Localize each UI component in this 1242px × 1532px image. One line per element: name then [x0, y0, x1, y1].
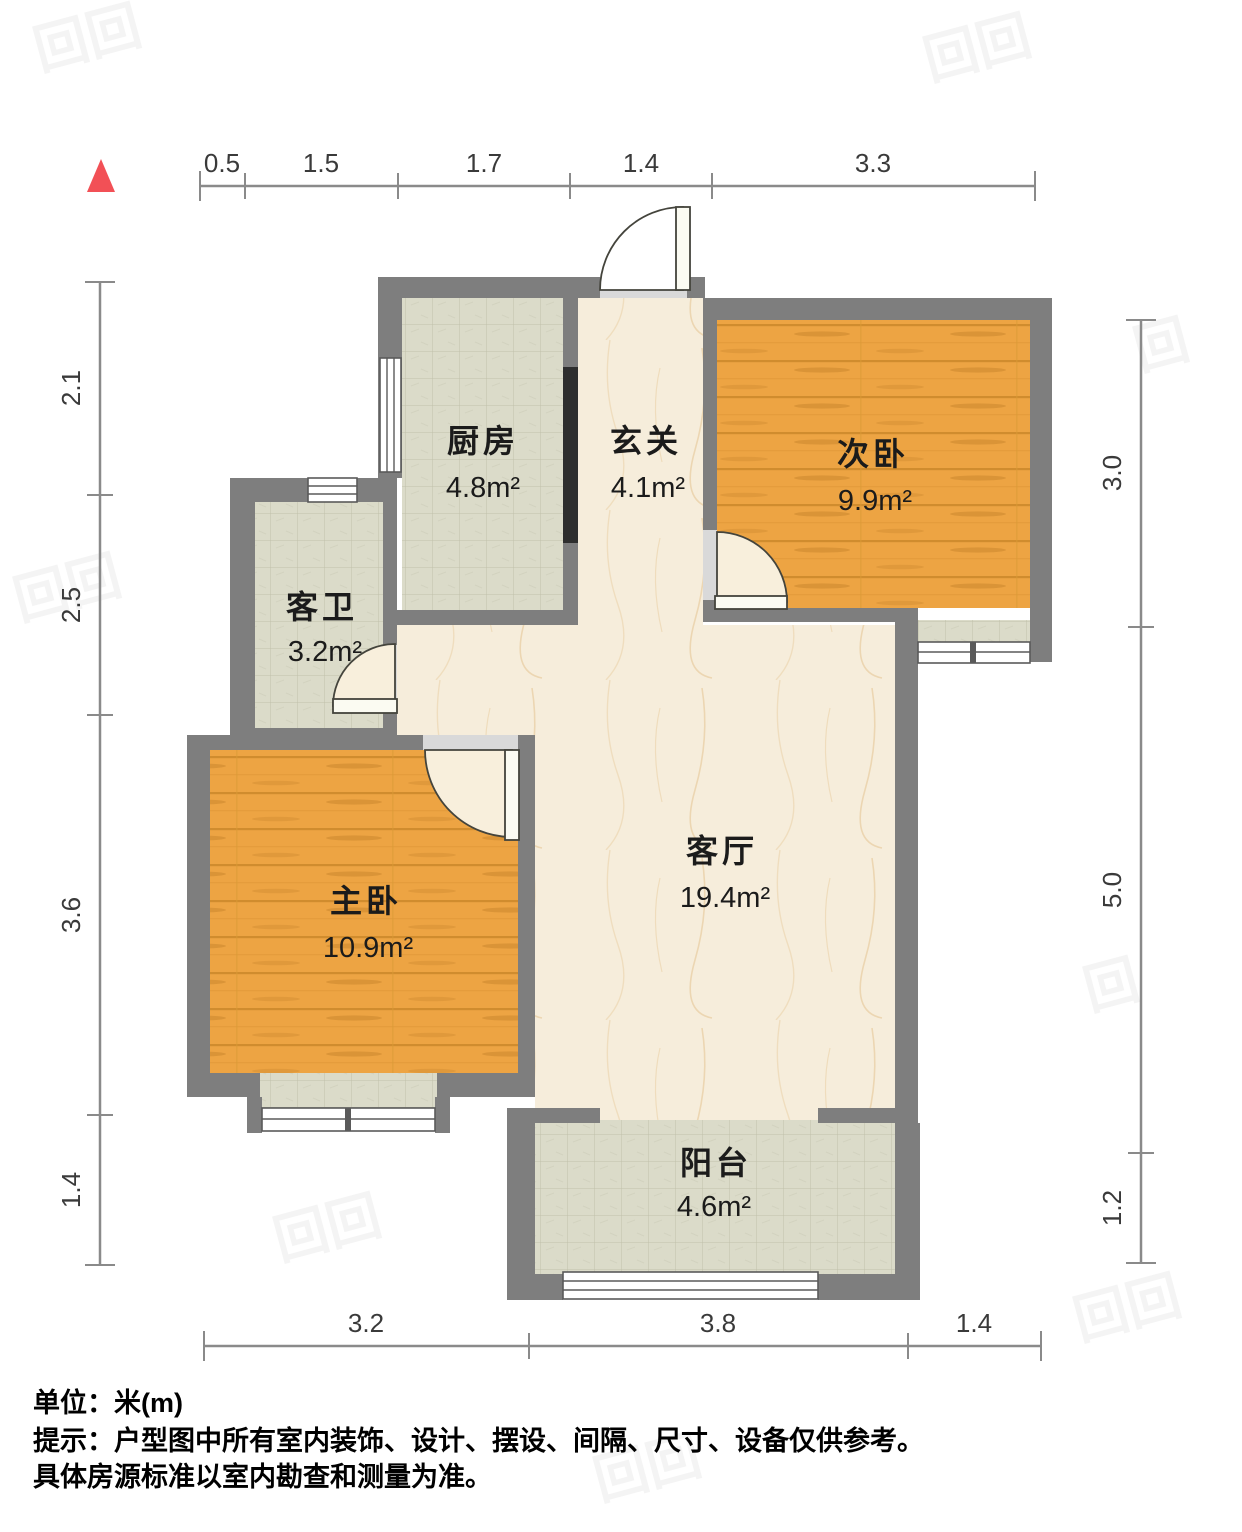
dim-bottom-2: 3.8 [700, 1308, 736, 1338]
living-room-floor-upper [397, 625, 895, 735]
second-bedroom-window [918, 642, 1030, 663]
second-bedroom-baywindow-sill [918, 620, 1030, 643]
dim-top-3: 1.7 [466, 148, 502, 178]
svg-text:回: 回 [1078, 950, 1146, 1022]
wall [895, 1123, 920, 1300]
unit-note: 单位：米(m) [33, 1387, 183, 1418]
wall [507, 1274, 563, 1300]
dim-right-2: 5.0 [1097, 872, 1127, 908]
guest-bathroom-window [308, 478, 357, 502]
wall [187, 735, 423, 750]
dim-top-2: 1.5 [303, 148, 339, 178]
svg-text:回回: 回回 [918, 6, 1038, 92]
kitchen-area: 4.8m² [446, 472, 520, 504]
second-bedroom-label: 次卧 [837, 436, 909, 472]
north-indicator-icon [87, 159, 115, 192]
balcony-window [563, 1272, 818, 1299]
footer-notes: 单位：米(m) 提示：户型图中所有室内装饰、设计、摆设、间隔、尺寸、设备仅供参考… [33, 1387, 924, 1492]
dim-bottom-1: 3.2 [348, 1308, 384, 1338]
svg-text:回回: 回回 [1068, 1266, 1188, 1352]
wall [378, 277, 600, 298]
wall [247, 1097, 262, 1133]
dim-left-4: 1.4 [56, 1172, 86, 1208]
dim-bottom-3: 1.4 [956, 1308, 992, 1338]
wall [187, 1073, 260, 1097]
wall [187, 735, 210, 1097]
dim-left-3: 3.6 [56, 897, 86, 933]
foyer-label: 玄关 [610, 423, 682, 459]
master-bedroom-door-threshold [423, 735, 518, 750]
floor-plan: 回回 回回 回 回回 回回 回 回回 回回 回回 [0, 0, 1242, 1532]
dim-top-5: 3.3 [855, 148, 891, 178]
living-room-floor [535, 735, 895, 1123]
wall [1030, 298, 1052, 662]
dim-right-1: 3.0 [1097, 455, 1127, 491]
svg-text:回回: 回回 [268, 1186, 388, 1272]
wall [703, 298, 717, 530]
master-bedroom-baywindow-sill [260, 1073, 437, 1108]
balcony-area: 4.6m² [677, 1191, 751, 1223]
wall [705, 298, 1052, 320]
foyer-area: 4.1m² [611, 472, 685, 504]
wall [818, 1274, 920, 1300]
living-room-label: 客厅 [686, 833, 758, 869]
wall [895, 608, 918, 1123]
master-bedroom-label: 主卧 [330, 883, 402, 919]
svg-text:回回: 回回 [28, 0, 148, 82]
dimension-top: 0.5 1.5 1.7 1.4 3.3 [200, 148, 1035, 201]
second-bedroom-door-threshold [703, 530, 717, 600]
dimension-bottom: 3.2 3.8 1.4 [204, 1308, 1041, 1361]
entry-door [600, 207, 690, 290]
dim-left-2: 2.5 [56, 587, 86, 623]
master-bedroom-window [262, 1108, 435, 1131]
wall [507, 1108, 535, 1300]
wall [435, 1097, 450, 1133]
disclaimer-line2: 具体房源标准以室内勘查和测量为准。 [33, 1461, 492, 1492]
guest-bathroom-area: 3.2m² [288, 636, 362, 668]
wall [397, 610, 578, 625]
dim-right-3: 1.2 [1097, 1190, 1127, 1226]
guest-bathroom-label: 客卫 [286, 589, 358, 625]
second-bedroom-area: 9.9m² [838, 485, 912, 517]
wall [818, 1108, 895, 1123]
dimension-right: 3.0 5.0 1.2 [1097, 320, 1156, 1263]
dim-top-4: 1.4 [623, 148, 659, 178]
wall [535, 1108, 600, 1123]
balcony-label: 阳台 [680, 1145, 752, 1181]
wall [383, 478, 397, 645]
wall [518, 735, 535, 1097]
living-room-area: 19.4m² [680, 882, 771, 914]
dim-left-1: 2.1 [56, 370, 86, 406]
foyer-floor [578, 298, 703, 625]
kitchen-label: 厨房 [447, 423, 519, 459]
wall [230, 478, 255, 745]
dim-top-1: 0.5 [204, 148, 240, 178]
disclaimer-line1: 提示：户型图中所有室内装饰、设计、摆设、间隔、尺寸、设备仅供参考。 [33, 1425, 924, 1456]
wall [437, 1073, 535, 1097]
wall [703, 608, 918, 622]
kitchen-window [380, 358, 401, 472]
kitchen-pass-opening [563, 367, 578, 543]
master-bedroom-area: 10.9m² [323, 932, 414, 964]
dimension-left: 2.1 2.5 3.6 1.4 [56, 282, 115, 1265]
